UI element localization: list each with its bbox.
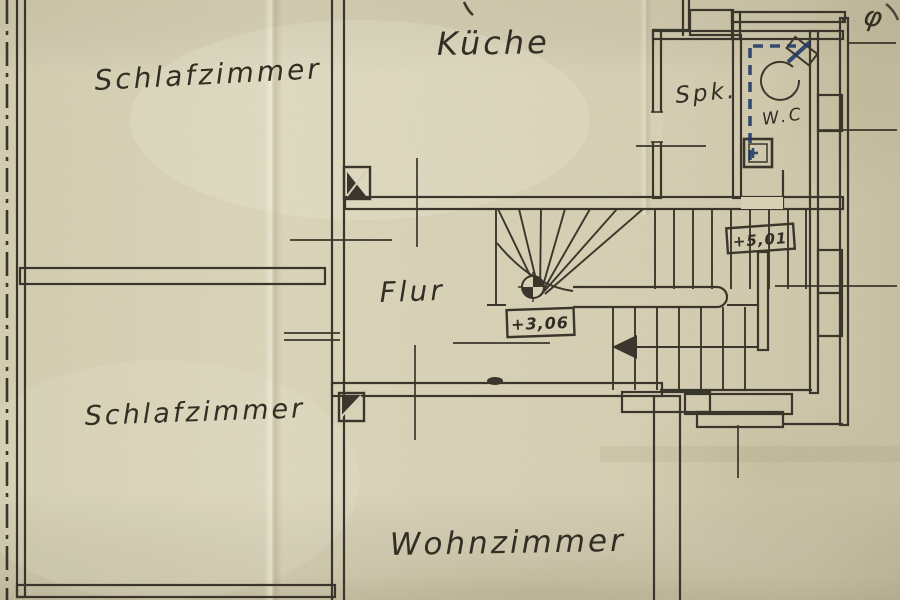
scanned-floor-plan: Schlafzimmer Küche Spk. W.C Flur Schlafz… <box>0 0 900 600</box>
level-value-flur: +3,06 <box>511 313 570 334</box>
room-label-wohnzimmer: Wohnzimmer <box>390 523 627 563</box>
wc-door-opening <box>741 197 783 209</box>
level-value-stair: +5,01 <box>732 229 788 251</box>
door-pivot-mark <box>487 377 503 385</box>
paper-crease <box>264 0 282 600</box>
room-label-flur: Flur <box>379 274 445 309</box>
floor-plan-drawing: Schlafzimmer Küche Spk. W.C Flur Schlafz… <box>0 0 900 600</box>
room-label-spk: Spk. <box>674 78 738 109</box>
scan-band <box>600 446 900 462</box>
paper-crease <box>640 0 652 215</box>
room-label-kueche: Küche <box>436 23 550 63</box>
